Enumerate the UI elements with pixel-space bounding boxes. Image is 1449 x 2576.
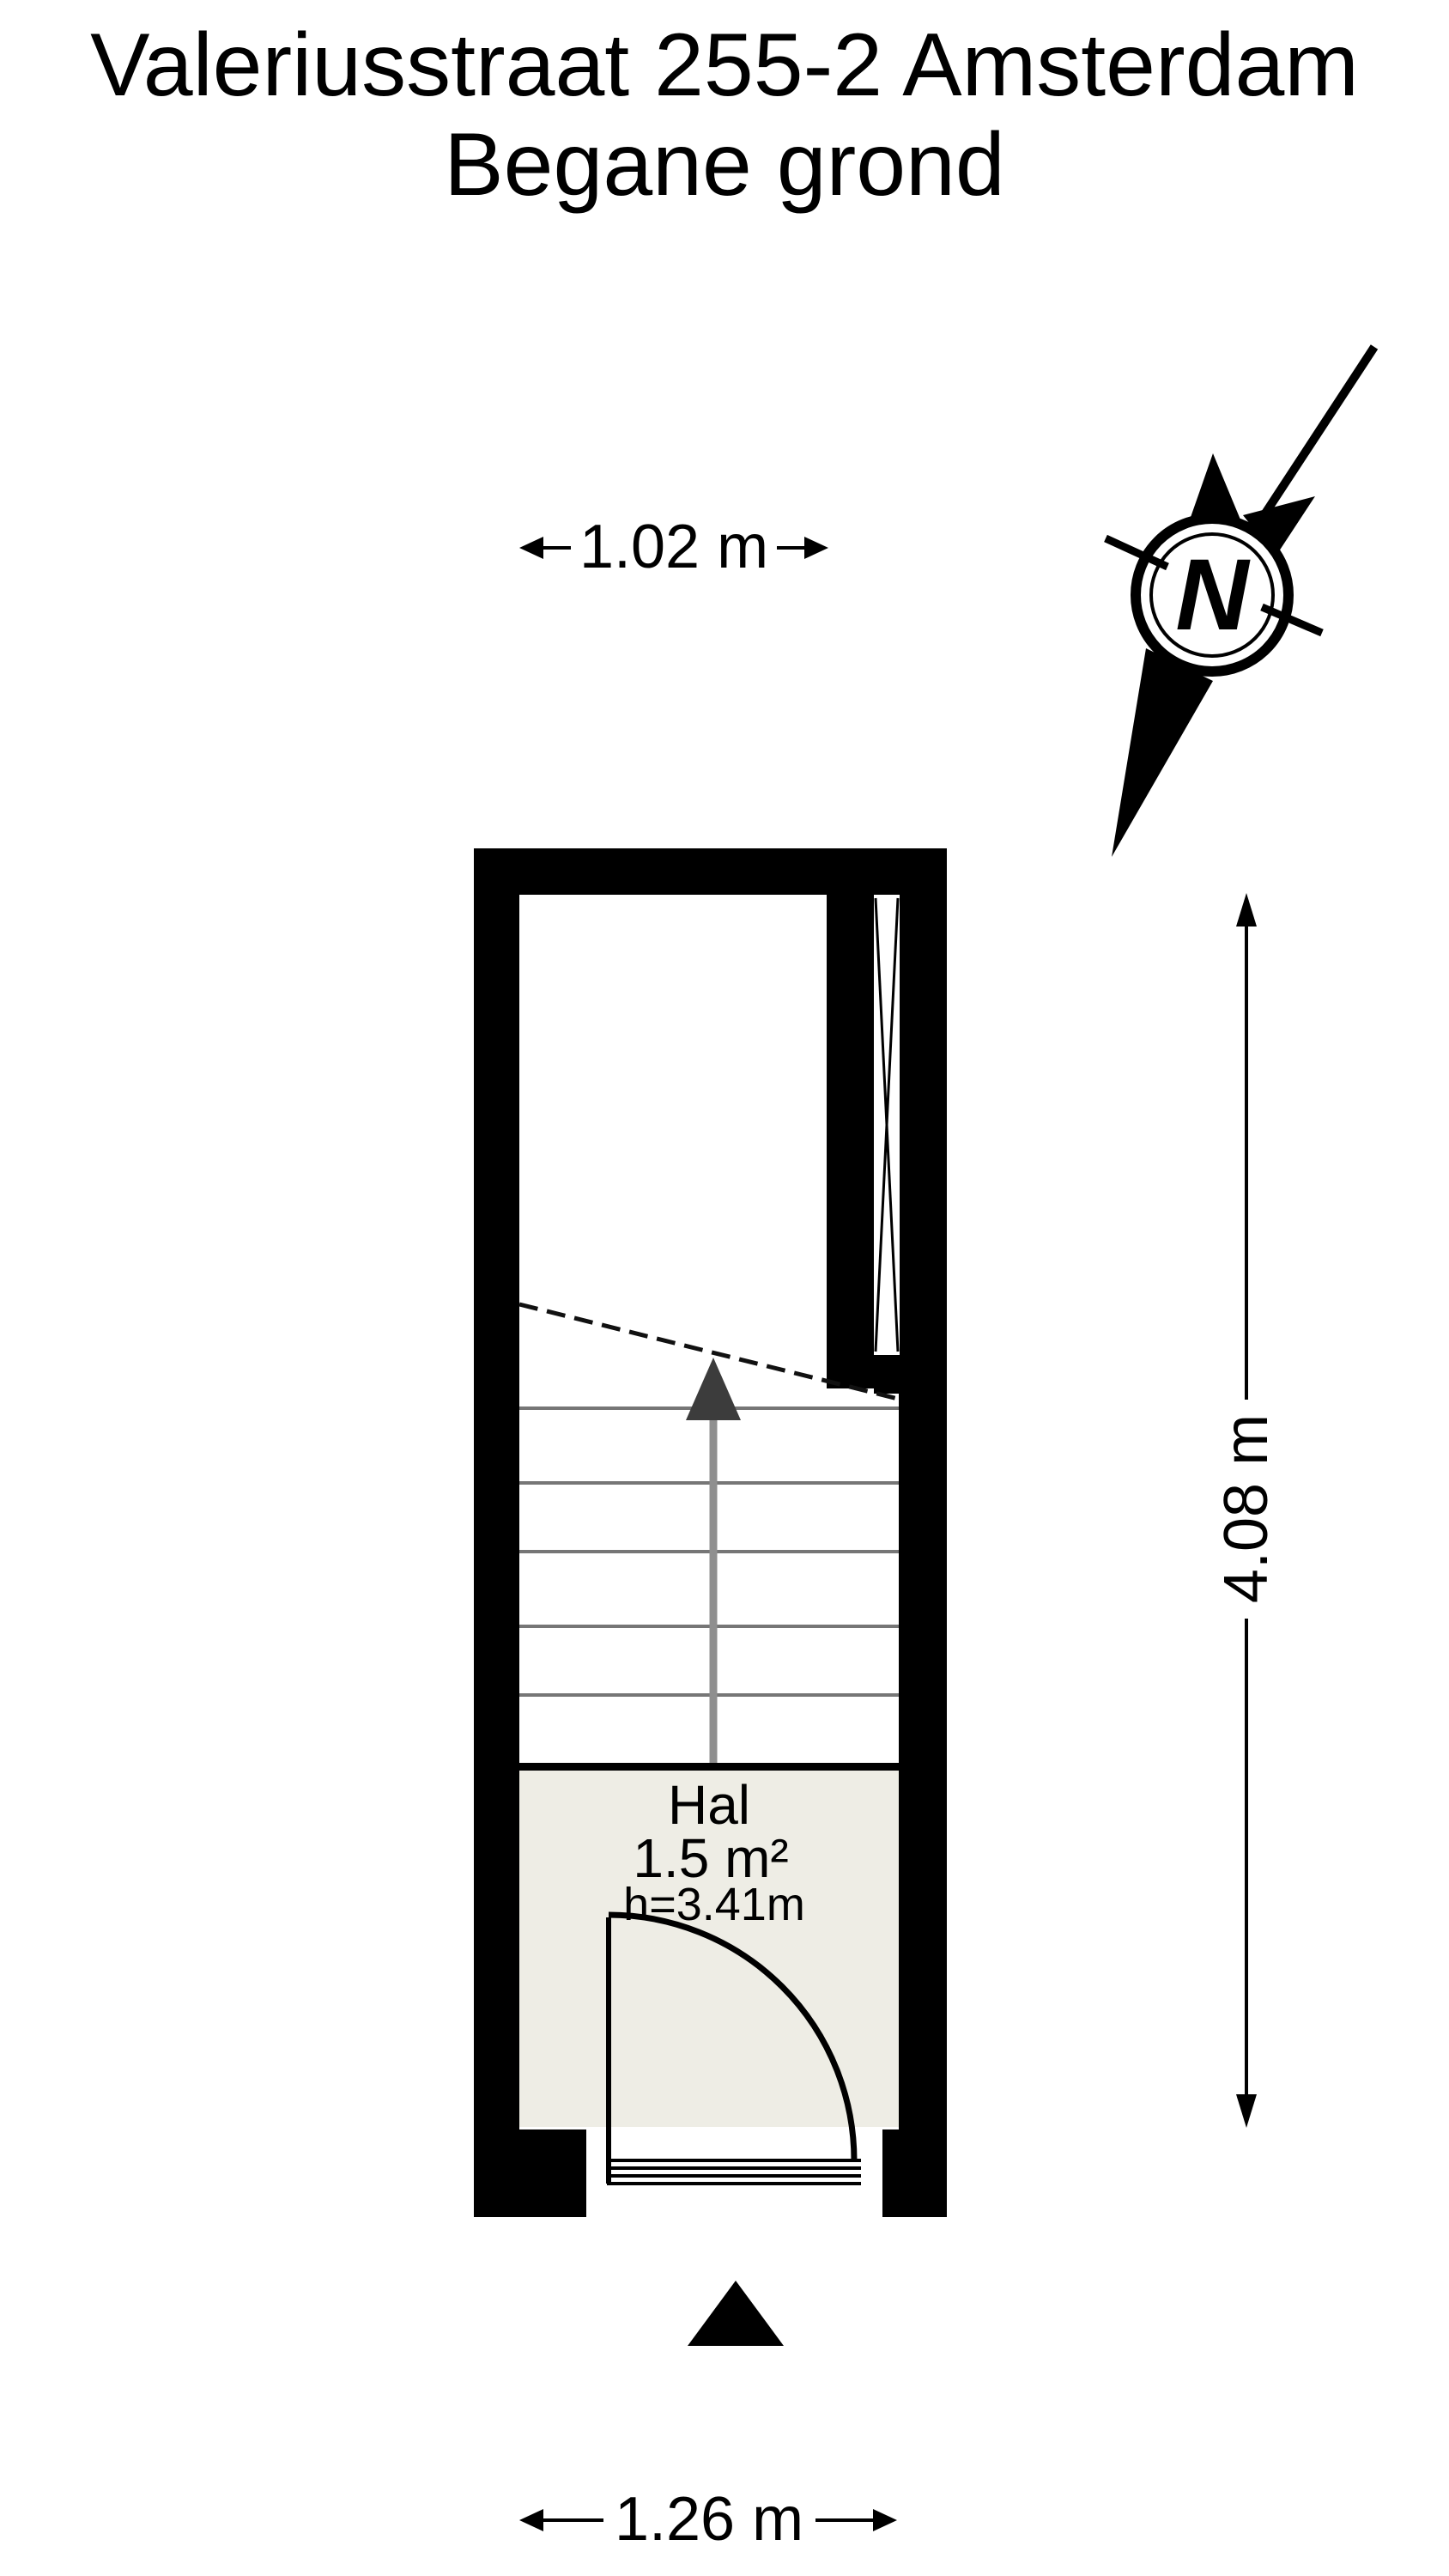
compass-north-label: N — [1175, 538, 1251, 652]
page-subtitle: Begane grond — [0, 115, 1449, 215]
dimension-label-top: 1.02 m — [579, 512, 768, 582]
wall-left — [474, 848, 519, 2217]
compass-needle — [1257, 347, 1374, 526]
wall-right-inner-column — [827, 895, 874, 1388]
room-ceiling-height: h=3.41m — [623, 1878, 805, 1931]
compass-south-tail — [1112, 648, 1213, 857]
compass-rose-icon: N — [1106, 347, 1374, 857]
title-block: Valeriusstraat 255-2 Amsterdam Begane gr… — [0, 15, 1449, 215]
dimension-arrow-right-icon — [804, 537, 828, 559]
compass-north-spike — [1189, 453, 1240, 522]
stair-bottom-edge — [519, 1763, 899, 1771]
wall-top — [474, 848, 947, 895]
wall-bottom-right-stub — [882, 2129, 947, 2217]
wall-right-shaft-bottom-fill — [874, 1355, 900, 1394]
page-title: Valeriusstraat 255-2 Amsterdam — [0, 15, 1449, 115]
door-leaf — [606, 1917, 611, 2184]
dimension-arrow-up-icon — [1236, 893, 1257, 927]
stair-direction-arrow-head — [686, 1358, 741, 1420]
dimension-arrow-right-icon — [873, 2509, 897, 2531]
wall-right-outer — [899, 895, 947, 2129]
dimension-label-right: 4.08 m — [1211, 1414, 1282, 1603]
entrance-arrow-icon — [688, 2281, 784, 2346]
dimension-arrow-left-icon — [519, 537, 543, 559]
dimension-label-bottom: 1.26 m — [615, 2484, 803, 2555]
floorplan — [474, 848, 947, 2346]
floorplan-drawing: N — [0, 0, 1449, 2576]
wall-bottom-left-stub — [474, 2129, 586, 2217]
dimension-arrow-left-icon — [519, 2509, 543, 2531]
dimension-arrow-down-icon — [1236, 2094, 1257, 2128]
floorplan-page: N Valeriusstraat 255-2 Amsterdam Begane … — [0, 0, 1449, 2576]
